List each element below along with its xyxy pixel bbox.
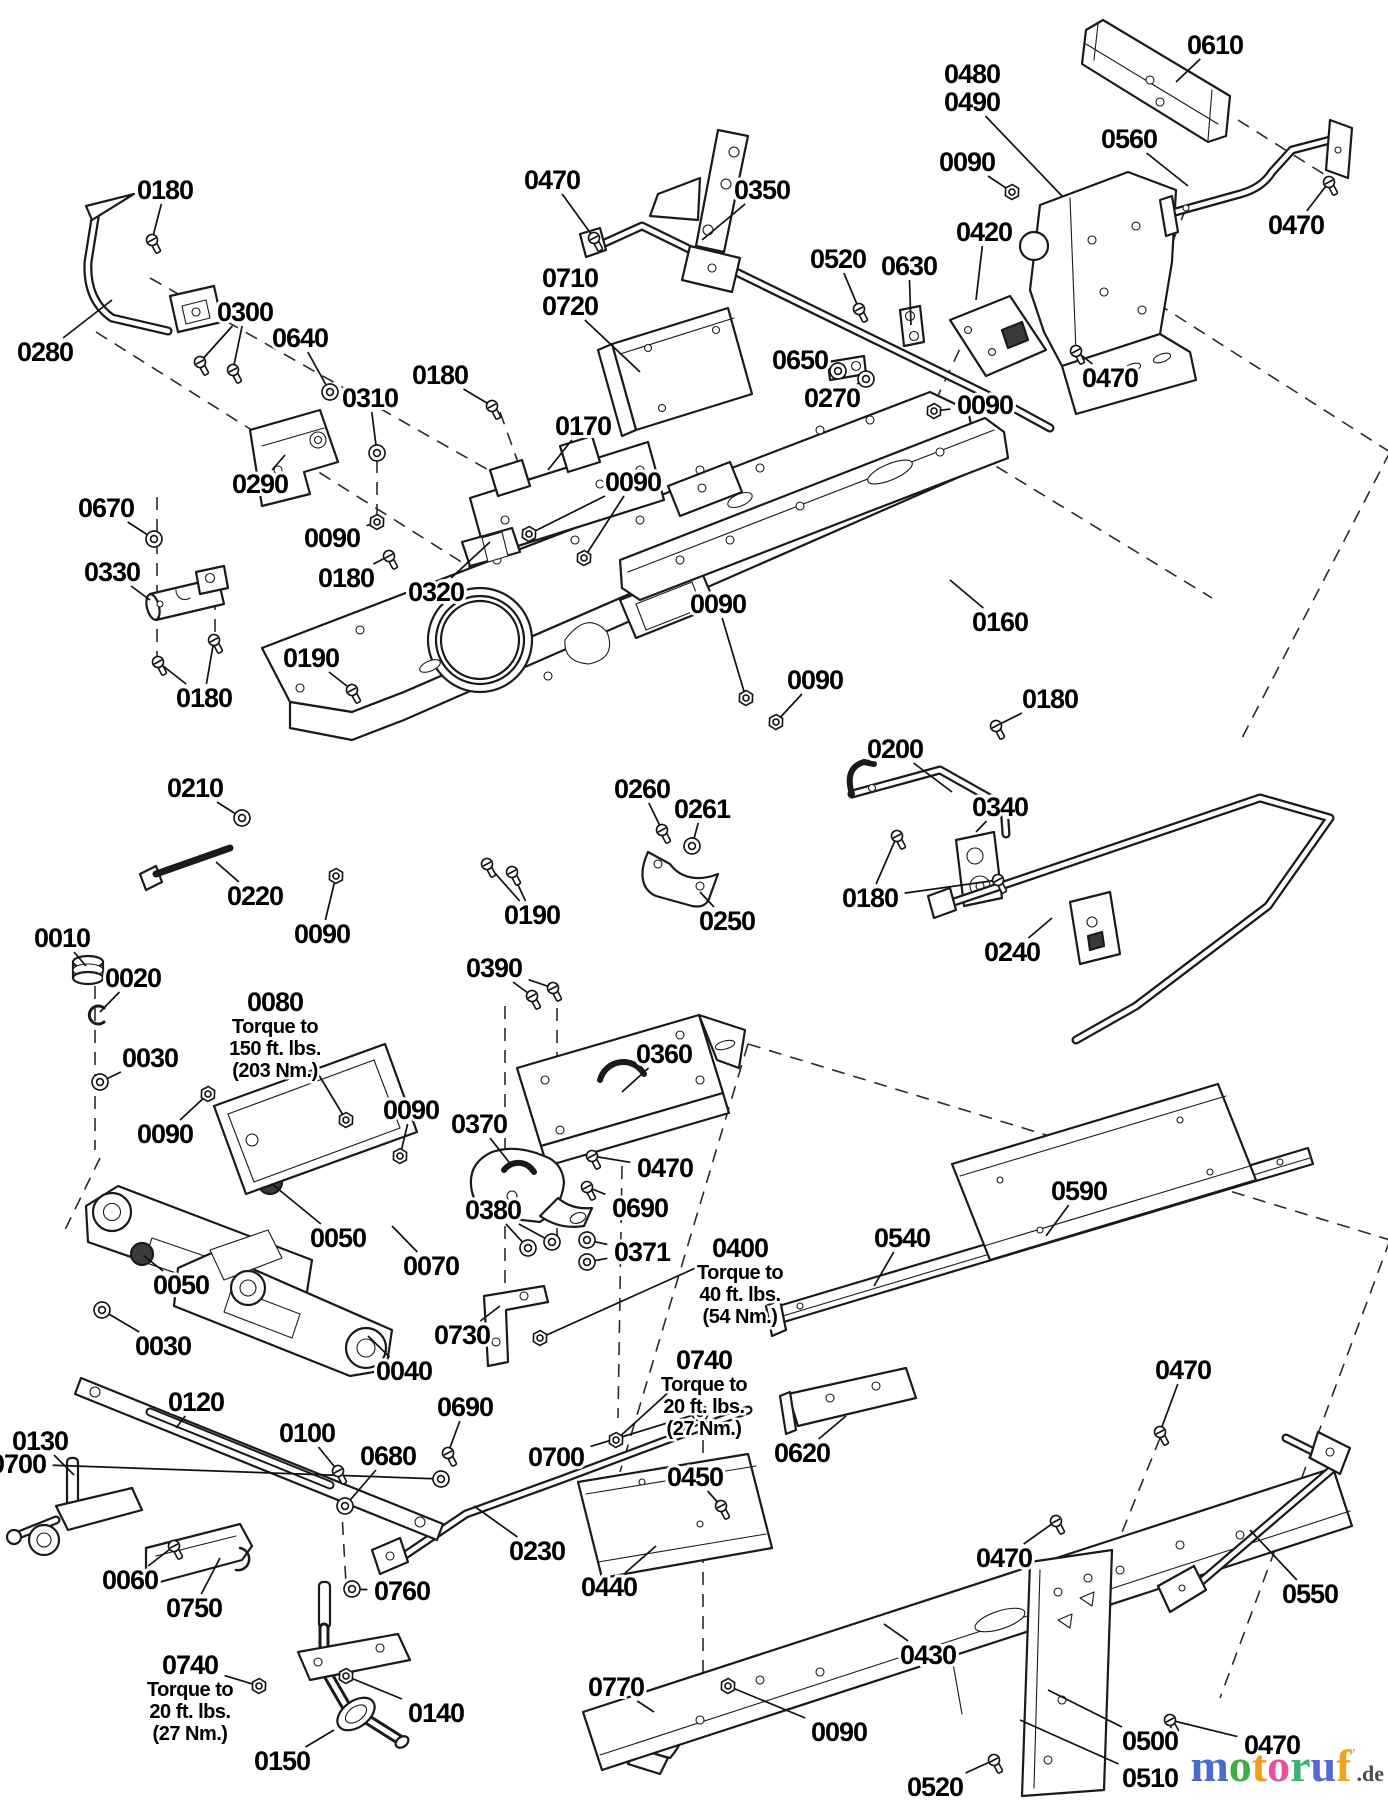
part-number-label: 0040 (376, 1356, 432, 1386)
part-number-label: 0300 (217, 297, 273, 327)
part-number-label: 0670 (78, 493, 134, 523)
part-number-label: 0420 (956, 217, 1012, 247)
part-number-label: 0470 (976, 1543, 1032, 1573)
part-number-label: 0180 (842, 883, 898, 913)
part-number-label: 0450 (667, 1462, 723, 1492)
part-number-label: 0090 (939, 147, 995, 177)
part-number-label: 0720 (542, 291, 598, 321)
torque-note-line: (27 Nm.) (153, 1723, 228, 1745)
link-0630-art (900, 306, 924, 346)
part-number-label: 0560 (1101, 124, 1157, 154)
part-number-label: 0690 (437, 1392, 493, 1422)
part-number-label: 0760 (374, 1576, 430, 1606)
part-number-label: 0350 (734, 175, 790, 205)
part-number-label: 0261 (674, 794, 731, 824)
part-number-label: 0200 (867, 734, 923, 764)
part-number-label: 0470 (637, 1153, 693, 1183)
part-number-label: 0630 (881, 251, 937, 281)
part-number-label: 0180 (412, 360, 468, 390)
part-number-label: 0770 (588, 1672, 644, 1702)
part-number-label: 0090 (294, 919, 350, 949)
part-number-label: 0280 (17, 337, 73, 367)
part-number-label: 0330 (84, 557, 140, 587)
part-number-label: 0550 (1282, 1579, 1338, 1609)
part-number-label: 0690 (612, 1193, 668, 1223)
part-number-label: 0270 (804, 383, 860, 413)
part-number-label: 0210 (167, 773, 223, 803)
part-number-label: 0540 (874, 1223, 930, 1253)
part-number-label: 0010 (34, 923, 90, 953)
part-number-label: 0390 (466, 953, 522, 983)
part-number-label: 0230 (509, 1536, 565, 1566)
part-number-label: 0680 (360, 1441, 416, 1471)
plate-0500-0510-art (1022, 1550, 1112, 1796)
torque-note-line: 150 ft. lbs. (229, 1038, 321, 1060)
part-number-label: 0730 (434, 1320, 490, 1350)
part-number-label: 0340 (972, 792, 1028, 822)
part-number-label: 0320 (408, 577, 464, 607)
part-number-label: 0180 (318, 563, 374, 593)
cap-0010-art (73, 956, 103, 984)
part-number-label: 0480 (944, 59, 1000, 89)
part-number-label: 0520 (810, 244, 866, 274)
part-number-label: 0180 (1022, 684, 1078, 714)
part-number-label: 0470 (1155, 1355, 1211, 1385)
torque-note-line: Torque to (232, 1016, 319, 1038)
torque-note-line: 20 ft. lbs. (663, 1396, 744, 1418)
torque-note-line: 40 ft. lbs. (699, 1284, 780, 1306)
part-number-label: 0500 (1122, 1726, 1178, 1756)
part-number-label: 0380 (465, 1195, 521, 1225)
part-number-label: 0650 (772, 345, 828, 375)
part-number-label: 0710 (542, 263, 598, 293)
torque-note-line: (203 Nm.) (232, 1060, 318, 1082)
part-number-label: 0160 (972, 607, 1028, 637)
part-number-label: 0180 (176, 683, 232, 713)
part-number-label: 0090 (957, 390, 1013, 420)
part-number-label: 0020 (105, 963, 161, 993)
part-number-label: 0060 (102, 1565, 158, 1595)
part-number-label: 0520 (907, 1772, 963, 1800)
part-number-label: 0360 (636, 1039, 692, 1069)
part-number-label: 0430 (900, 1640, 956, 1670)
part-number-label: 0590 (1051, 1176, 1107, 1206)
part-number-label: 0090 (137, 1119, 193, 1149)
part-number-label: 0120 (168, 1387, 224, 1417)
exploded-diagram: 0610048004900090056004700470035001800420… (0, 0, 1388, 1800)
part-number-label: 0740 (162, 1650, 218, 1680)
part-number-label: 0740 (676, 1345, 732, 1375)
part-number-label: 0250 (699, 906, 755, 936)
torque-note-line: Torque to (147, 1679, 234, 1701)
part-number-label: 0220 (227, 881, 283, 911)
part-number-label: 0170 (555, 411, 611, 441)
part-number-label: 0090 (605, 467, 661, 497)
torque-note-line: Torque to (697, 1262, 784, 1284)
part-number-label: 0180 (137, 175, 193, 205)
part-number-label: 0310 (342, 383, 398, 413)
part-number-label: 0371 (614, 1237, 671, 1267)
part-number-label: 0100 (279, 1418, 335, 1448)
part-number-label: 0090 (304, 523, 360, 553)
part-number-label: 0470 (1082, 363, 1138, 393)
part-number-label: 0080 (247, 987, 303, 1017)
torque-note-line: 20 ft. lbs. (149, 1701, 230, 1723)
part-number-label: 0050 (310, 1223, 366, 1253)
part-number-label: 0030 (122, 1043, 178, 1073)
part-number-label: 0050 (153, 1270, 209, 1300)
part-number-label: 0090 (787, 665, 843, 695)
part-number-label: 0290 (232, 469, 288, 499)
part-number-label: 0190 (283, 643, 339, 673)
part-number-label: 0620 (774, 1438, 830, 1468)
part-number-label: 0090 (690, 589, 746, 619)
part-number-label: 0440 (581, 1572, 637, 1602)
part-number-label: 0090 (811, 1717, 867, 1747)
parts-diagram-page: 0610048004900090056004700470035001800420… (0, 0, 1388, 1800)
part-number-label: 0240 (984, 937, 1040, 967)
part-number-label: 0190 (504, 900, 560, 930)
part-number-label: 0490 (944, 87, 1000, 117)
part-number-label: 0140 (408, 1698, 464, 1728)
torque-note-line: (27 Nm.) (667, 1418, 742, 1440)
part-number-label: 0470 (1268, 210, 1324, 240)
part-number-label: 0700 (528, 1442, 584, 1472)
part-number-label: 0750 (166, 1593, 222, 1623)
part-number-label: 0090 (383, 1095, 439, 1125)
part-number-label: 0370 (451, 1109, 507, 1139)
part-number-label: 0700 (0, 1449, 46, 1479)
part-number-label: 0150 (254, 1746, 310, 1776)
part-number-label: 0610 (1187, 30, 1243, 60)
torque-note-line: Torque to (661, 1374, 748, 1396)
part-number-label: 0470 (524, 165, 580, 195)
part-number-label: 0030 (135, 1331, 191, 1361)
part-number-label: 0070 (403, 1251, 459, 1281)
part-number-label: 0400 (712, 1233, 768, 1263)
part-number-label: 0510 (1122, 1763, 1178, 1793)
part-number-label: 0640 (272, 323, 328, 353)
part-number-label: 0260 (614, 774, 670, 804)
torque-note-line: (54 Nm.) (703, 1306, 778, 1328)
